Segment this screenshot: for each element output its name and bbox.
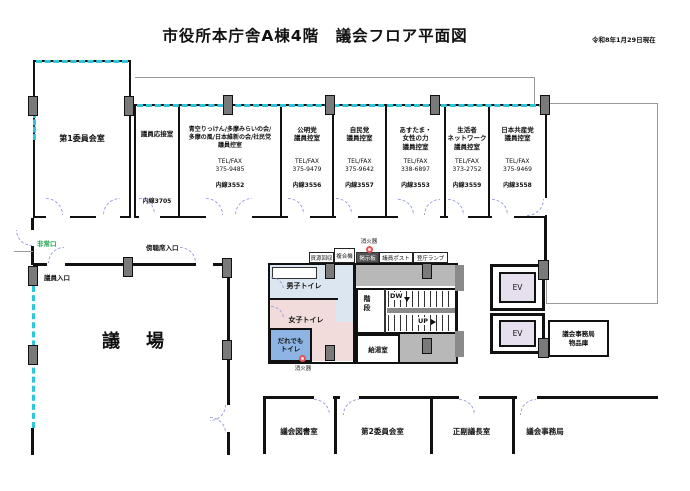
- kitchenette-label: 給湯室: [368, 344, 388, 354]
- door-arc: [16, 230, 32, 246]
- wall: [227, 432, 230, 455]
- room-party-aozora: 青空りっけん/多摩みらいの会/ 多摩の風/日本維新の会/社民党 議員控室 TEL…: [178, 104, 282, 218]
- door-gap: [398, 215, 440, 219]
- room-storage: 議会事務局 物品庫: [548, 320, 609, 357]
- womens-toilet-label: 女子トイレ: [274, 316, 338, 325]
- stairs-divider: [384, 289, 386, 333]
- exterior-outline-line: [135, 77, 535, 78]
- wall: [544, 218, 547, 265]
- room-label: 第1委員会室: [59, 134, 105, 144]
- boundary-line-cyan: [137, 104, 545, 107]
- wall: [430, 396, 433, 454]
- room-label: 生活者 ネットワーク 議員控室: [448, 126, 487, 158]
- door-gap: [227, 405, 230, 432]
- door-arc: [210, 417, 226, 433]
- door-arc: [206, 198, 223, 215]
- room-chairs-label: 正副議長室: [430, 427, 513, 437]
- wall: [512, 396, 515, 454]
- room-secretariat-label: 議会事務局: [513, 427, 577, 437]
- wall: [31, 428, 34, 455]
- wall: [31, 218, 34, 230]
- room-telfax: TEL/FAX 375-9485: [216, 158, 245, 175]
- pillar: [455, 331, 464, 357]
- door-arc: [343, 399, 359, 415]
- door-arc: [448, 199, 464, 215]
- room-telfax: TEL/FAX 373-2752: [453, 158, 482, 175]
- pillar: [455, 265, 464, 291]
- room-telfax: TEL/FAX 375-9469: [503, 158, 532, 175]
- room-committee-1: 第1委員会室: [33, 60, 131, 218]
- room-telfax: TEL/FAX 375-9642: [345, 158, 374, 175]
- copier-station: 複合機: [334, 248, 355, 263]
- pillar: [325, 263, 335, 279]
- kitchenette: 給湯室: [356, 334, 400, 364]
- door-arc: [492, 199, 508, 215]
- room-extension: 内線3553: [401, 180, 430, 189]
- gallery-entrance-label: 傍聴席入口: [146, 242, 179, 252]
- door-arc: [235, 198, 252, 215]
- pillar: [28, 96, 38, 116]
- exterior-outline-line: [14, 251, 33, 252]
- room-label: 議員応接室: [141, 130, 174, 164]
- room-telfax: TEL/FAX 338-6897: [401, 158, 430, 175]
- door-gap: [196, 263, 213, 266]
- room-extension: 内線3557: [345, 180, 374, 189]
- door-arc: [139, 198, 155, 214]
- fire-extinguisher-label: 消火器: [356, 237, 382, 245]
- unused-area-outline: [546, 103, 658, 304]
- room-extension: 内線3552: [216, 180, 245, 189]
- pillar: [222, 258, 232, 278]
- pillar: [123, 257, 133, 277]
- wall: [334, 396, 337, 454]
- pillar: [540, 95, 550, 115]
- door-arc: [48, 247, 64, 263]
- door-gap: [288, 215, 310, 219]
- pillar: [124, 96, 134, 116]
- mens-toilet-area: [336, 265, 353, 322]
- pillar: [325, 345, 335, 361]
- stairs-label: 階 段: [360, 295, 374, 313]
- door-arc: [180, 247, 196, 263]
- pillar: [28, 345, 38, 365]
- room-label: 日本共産党 議員控室: [501, 126, 534, 158]
- stairs-up-label: UP: [418, 317, 428, 325]
- pillar: [430, 95, 440, 115]
- door-arc: [103, 198, 120, 215]
- pillar: [422, 263, 432, 279]
- room-telfax: TEL/FAX 375-9479: [293, 158, 322, 175]
- room-label: あすたま・ 女性の力 議員控室: [399, 126, 431, 158]
- stairs-landing: [387, 308, 455, 313]
- door-gap: [139, 215, 160, 219]
- door-arc: [336, 198, 352, 214]
- boundary-line-cyan: [33, 112, 36, 140]
- room-label: 議会事務局 物品庫: [562, 330, 595, 347]
- up-arrow-icon: [431, 319, 436, 325]
- door-gap: [336, 215, 358, 219]
- fire-extinguisher-label: 消火器: [288, 364, 318, 372]
- pillar: [538, 260, 549, 280]
- assembly-hall-label: 議 場: [80, 330, 190, 353]
- door-arc: [398, 199, 414, 215]
- room-extension: 内線3556: [293, 180, 322, 189]
- door-arc: [459, 399, 475, 415]
- fire-extinguisher-icon: [299, 355, 306, 362]
- door-arc: [424, 199, 440, 215]
- fire-extinguisher-icon: [366, 246, 373, 253]
- pillar: [28, 266, 38, 286]
- down-arrow-icon: [404, 297, 410, 302]
- member-postboxes: 議員ポスト: [379, 252, 413, 263]
- revision-date: 令和8年1月29日現在: [592, 34, 656, 44]
- door-gap: [492, 215, 514, 219]
- room-label: 公明党 議員控室: [294, 126, 320, 158]
- member-entrance-label: 議員入口: [44, 272, 70, 282]
- room-committee-2-label: 第2委員会室: [334, 427, 431, 437]
- door-gap: [448, 215, 468, 219]
- floor-plan: 市役所本庁舎A棟4階 議会フロア平面図 令和8年1月29日現在 第1委員会室 議…: [0, 0, 690, 491]
- door-arc: [527, 199, 544, 216]
- wall: [270, 298, 338, 300]
- bulletin-board: 掲示板: [356, 252, 379, 263]
- door-gap: [206, 215, 252, 219]
- door-gap: [46, 215, 70, 219]
- pillar: [222, 340, 232, 360]
- pillar: [325, 95, 335, 115]
- accessible-toilet-label: だれでも トイレ: [278, 337, 304, 354]
- door-arc: [288, 198, 304, 214]
- pillar: [422, 338, 432, 354]
- womens-toilet-area: [336, 322, 353, 361]
- elevator-1-car: EV: [499, 272, 536, 303]
- recycle-station: 資源回収: [309, 252, 334, 263]
- boundary-line-cyan: [36, 60, 128, 63]
- door-arc: [314, 399, 330, 415]
- room-library-label: 議会図書室: [263, 427, 335, 437]
- door-arc: [520, 399, 536, 415]
- exterior-outline-line: [534, 77, 535, 105]
- elevator-label: EV: [513, 283, 523, 292]
- room-label: 青空りっけん/多摩みらいの会/ 多摩の風/日本維新の会/社民党 議員控室: [189, 126, 271, 158]
- stairs-down-label: DW: [390, 292, 403, 300]
- pillar: [223, 95, 233, 115]
- elevator-label: EV: [513, 329, 523, 338]
- door-gap: [96, 215, 120, 219]
- room-extension: 内線3559: [453, 180, 482, 189]
- wall: [227, 266, 230, 405]
- room-extension: 内線3558: [503, 180, 532, 189]
- mens-toilet-label: 男子トイレ: [272, 282, 336, 291]
- door-gap: [47, 263, 65, 266]
- page-title: 市役所本庁舎A棟4階 議会フロア平面図: [115, 26, 515, 46]
- attendance-lamp: 登庁ランプ: [413, 252, 448, 263]
- elevator-2-car: EV: [499, 320, 536, 347]
- door-arc: [46, 198, 63, 215]
- door-gap: [544, 198, 548, 215]
- room-label: 自民党 議員控室: [347, 126, 373, 158]
- service-area: [356, 265, 456, 286]
- wall: [263, 396, 266, 454]
